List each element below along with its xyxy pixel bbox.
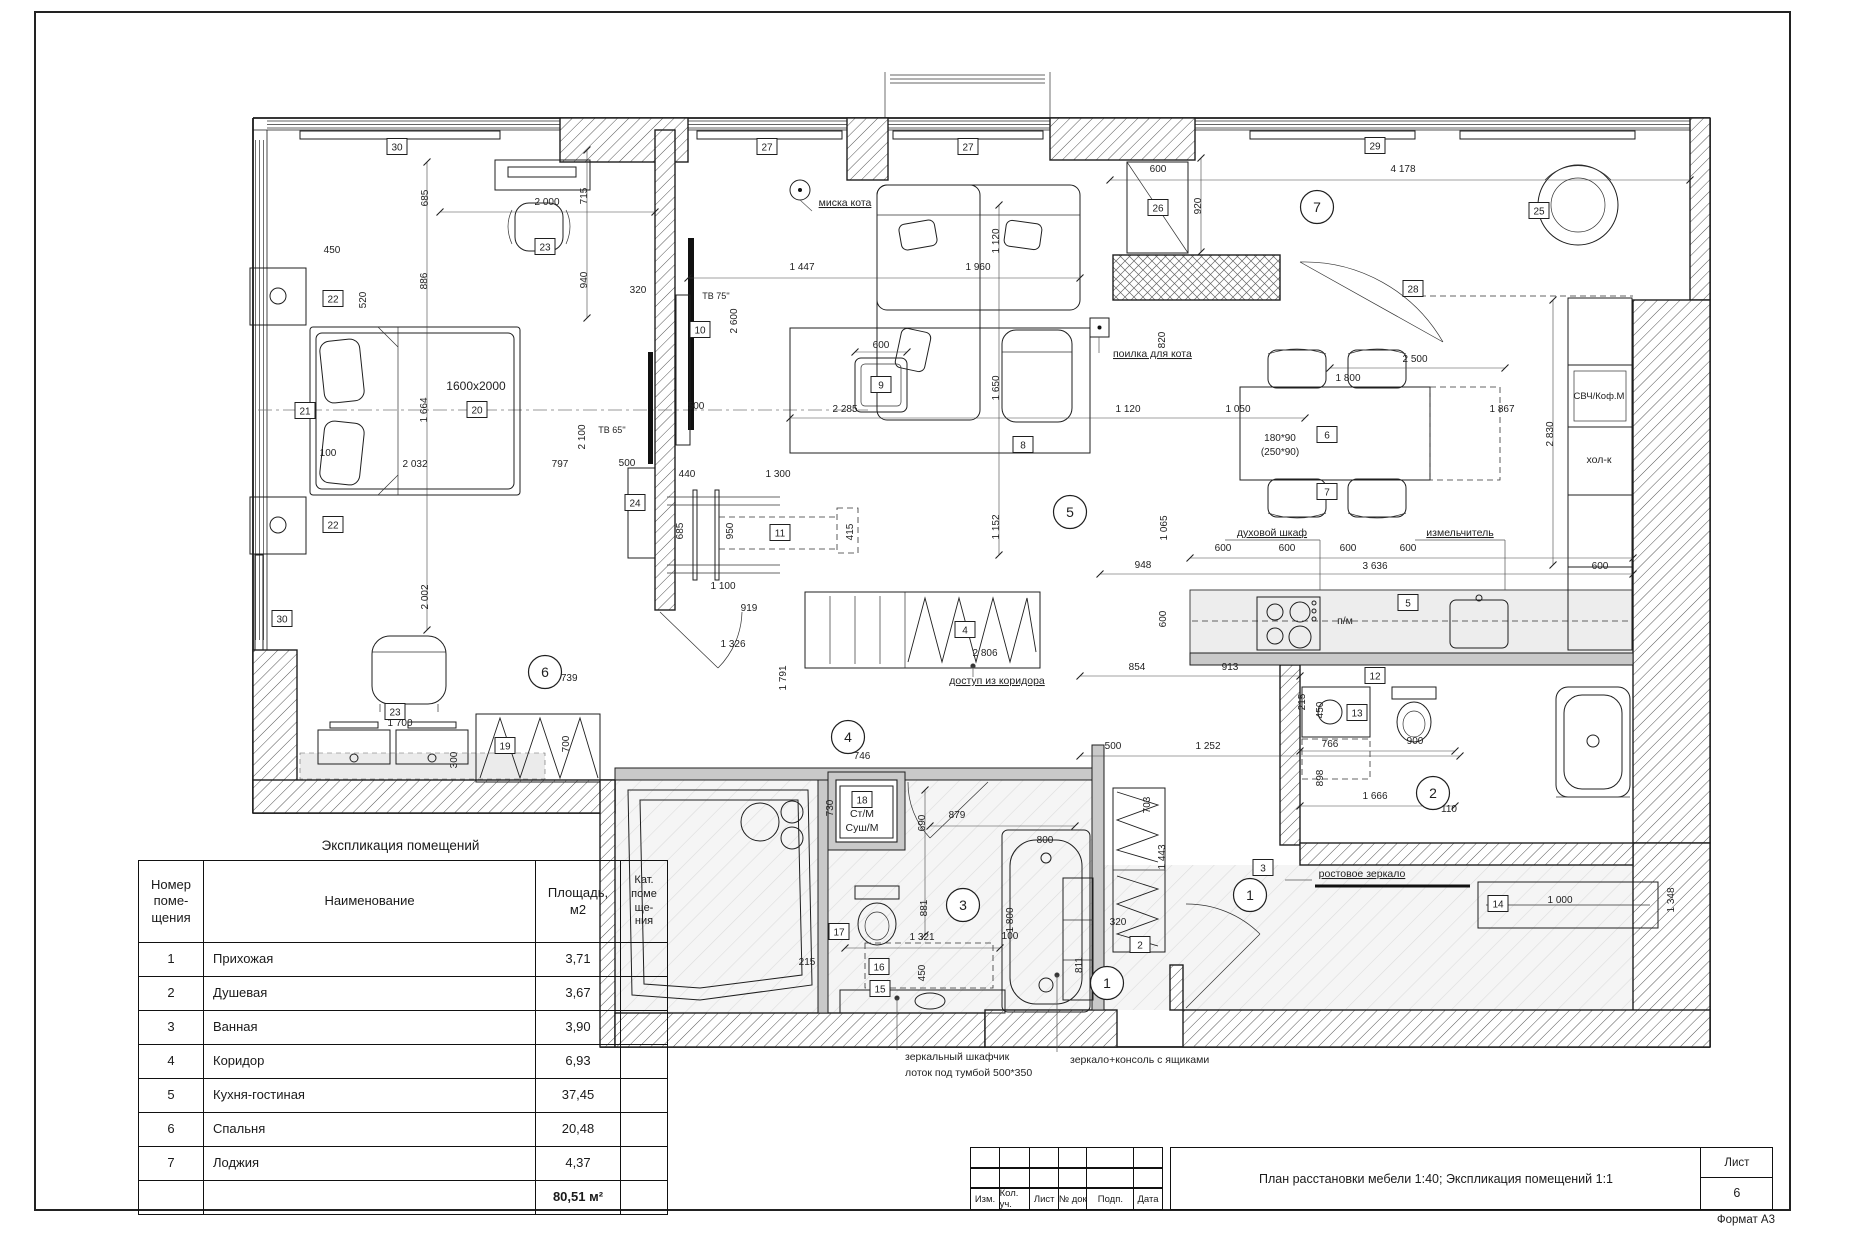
explication-table: Номер поме- щения Наименование Площадь, … bbox=[138, 860, 668, 1215]
dimension-label: 898 bbox=[1315, 769, 1326, 786]
dimension-label: 2 830 bbox=[1545, 421, 1556, 446]
dimension-label: 2 285 bbox=[832, 404, 857, 415]
dimension-label: 2 500 bbox=[1402, 354, 1427, 365]
dimension-label: 1 791 bbox=[778, 665, 789, 690]
dimension-label: 500 bbox=[1105, 741, 1122, 752]
dimension-label: 600 bbox=[1215, 543, 1232, 554]
dimension-label: 1 867 bbox=[1489, 404, 1514, 415]
dimension-label: 879 bbox=[949, 810, 966, 821]
explication-cell: Ванная bbox=[204, 1011, 536, 1045]
explication-cell: Душевая bbox=[204, 977, 536, 1011]
dimension-label: 900 bbox=[1407, 736, 1424, 747]
item-marker-number: 6 bbox=[1324, 431, 1330, 442]
dimension-label: 1 650 bbox=[991, 375, 1002, 400]
dimension-label: 600 bbox=[1400, 543, 1417, 554]
dimension-label: 2 100 bbox=[577, 424, 588, 449]
explication-cell: 5 bbox=[139, 1079, 204, 1113]
item-marker-number: 5 bbox=[1405, 599, 1411, 610]
dimension-label: 2 000 bbox=[534, 197, 559, 208]
stamp-cell bbox=[1029, 1168, 1059, 1188]
stamp-cell bbox=[1058, 1147, 1088, 1168]
drawing-sheet: { "sheet": { "format": "Формат А3", "tit… bbox=[0, 0, 1850, 1233]
dimension-label: 450 bbox=[1315, 701, 1326, 718]
item-marker-number: 30 bbox=[391, 143, 403, 154]
dimension-label: 1 100 bbox=[710, 581, 735, 592]
explication-row: 6Спальня20,48 bbox=[139, 1113, 668, 1147]
dimension-label: 1 800 bbox=[1005, 907, 1016, 932]
dimension-label: 215 bbox=[1297, 693, 1308, 710]
room-marker-number: 5 bbox=[1066, 504, 1074, 520]
dimension-label: 440 bbox=[679, 469, 696, 480]
dimension-label: 180*90 bbox=[1264, 433, 1296, 444]
explication-cell bbox=[621, 943, 668, 977]
item-marker-number: 27 bbox=[761, 143, 773, 154]
dimension-label: 100 bbox=[320, 448, 337, 459]
explication-cell: Спальня bbox=[204, 1113, 536, 1147]
annotation-label: духовой шкаф bbox=[1237, 527, 1308, 539]
dimension-label: 450 bbox=[917, 964, 928, 981]
item-marker-number: 17 bbox=[833, 928, 845, 939]
dimension-label: 940 bbox=[579, 271, 590, 288]
dimension-label: 690 bbox=[917, 814, 928, 831]
dimension-label: 1 666 bbox=[1362, 791, 1387, 802]
dimension-label: 520 bbox=[358, 291, 369, 308]
item-marker-number: 12 bbox=[1369, 672, 1381, 683]
dimension-label: 320 bbox=[630, 285, 647, 296]
item-marker-number: 7 bbox=[1324, 488, 1330, 499]
sheet-label-cell: Лист bbox=[1700, 1147, 1773, 1178]
room-marker-number: 4 bbox=[844, 729, 852, 745]
item-marker-number: 21 bbox=[299, 407, 311, 418]
dimension-label: 3 636 bbox=[1362, 561, 1387, 572]
explication-cell: 4,37 bbox=[536, 1147, 621, 1181]
explication-cell bbox=[621, 1045, 668, 1079]
annotation-label: ростовое зеркало bbox=[1319, 868, 1406, 880]
item-marker-number: 30 bbox=[276, 615, 288, 626]
dimension-label: (250*90) bbox=[1261, 447, 1299, 458]
explication-row: 1Прихожая3,71 bbox=[139, 943, 668, 977]
explication-row: 2Душевая3,67 bbox=[139, 977, 668, 1011]
annotation-label: ТВ 65'' bbox=[598, 425, 626, 435]
explication-cell: Лоджия bbox=[204, 1147, 536, 1181]
stamp-cell bbox=[1058, 1168, 1088, 1188]
explication-cell: 3 bbox=[139, 1011, 204, 1045]
stamp-cell bbox=[1133, 1168, 1163, 1188]
format-label: Формат А3 bbox=[1630, 1214, 1775, 1226]
explication-cell bbox=[621, 1147, 668, 1181]
item-marker-number: 3 bbox=[1260, 864, 1266, 875]
item-marker-number: 22 bbox=[327, 295, 339, 306]
item-marker-number: 28 bbox=[1407, 285, 1419, 296]
explication-total-row: 80,51 м² bbox=[139, 1181, 668, 1215]
dimension-label: 913 bbox=[1222, 662, 1239, 673]
dimension-label: 881 bbox=[919, 899, 930, 916]
dimension-label: 450 bbox=[324, 245, 341, 256]
annotation-label: Ст/М bbox=[850, 808, 874, 820]
item-marker-number: 19 bbox=[499, 742, 511, 753]
explication-row: 5Кухня-гостиная37,45 bbox=[139, 1079, 668, 1113]
item-marker-number: 10 bbox=[694, 326, 706, 337]
item-marker-number: 25 bbox=[1533, 207, 1545, 218]
dimension-label: 2 600 bbox=[729, 308, 740, 333]
explication-cell: Кухня-гостиная bbox=[204, 1079, 536, 1113]
item-marker-number: 22 bbox=[327, 521, 339, 532]
annotation-label: ТВ 75'' bbox=[702, 291, 730, 301]
item-marker-number: 27 bbox=[962, 143, 974, 154]
dimension-label: 854 bbox=[1129, 662, 1146, 673]
item-marker-number: 14 bbox=[1492, 900, 1504, 911]
stamp-col-label: Лист bbox=[1029, 1188, 1059, 1210]
dimension-label: 1 664 bbox=[419, 397, 430, 422]
item-marker-number: 2 bbox=[1137, 941, 1143, 952]
stamp-cell bbox=[1086, 1168, 1134, 1188]
explication-cell: 1 bbox=[139, 943, 204, 977]
dimension-label: 730 bbox=[825, 799, 836, 816]
dimension-label: 600 bbox=[1592, 561, 1609, 572]
dimension-label: 715 bbox=[579, 187, 590, 204]
room-marker-number: 7 bbox=[1313, 199, 1321, 215]
dimension-label: 600 bbox=[1279, 543, 1296, 554]
explication-total-cell: 80,51 м² bbox=[536, 1181, 621, 1215]
item-marker-number: 26 bbox=[1152, 204, 1164, 215]
dimension-label: 600 bbox=[1340, 543, 1357, 554]
room-marker-number: 1 bbox=[1246, 887, 1254, 903]
dimension-label: 685 bbox=[420, 189, 431, 206]
explication-cell: Коридор bbox=[204, 1045, 536, 1079]
dimension-label: 766 bbox=[1322, 739, 1339, 750]
explication-cell: 7 bbox=[139, 1147, 204, 1181]
item-marker-number: 15 bbox=[874, 985, 886, 996]
room-marker-number: 3 bbox=[959, 897, 967, 913]
dimension-label: 685 bbox=[675, 522, 686, 539]
explication-cell: 3,67 bbox=[536, 977, 621, 1011]
stamp-cell bbox=[970, 1168, 1000, 1188]
annotation-label: зеркало+консоль с ящиками bbox=[1070, 1054, 1209, 1066]
annotation-label: зеркальный шкафчик bbox=[905, 1051, 1010, 1063]
dimension-label: 4 178 bbox=[1390, 164, 1415, 175]
dimension-label: 600 bbox=[1150, 164, 1167, 175]
dimension-label: 2 032 bbox=[402, 459, 427, 470]
stamp-cell bbox=[1133, 1147, 1163, 1168]
dimension-label: 1 348 bbox=[1666, 887, 1677, 912]
annotation-label: п/м bbox=[1337, 615, 1353, 627]
item-marker-number: 18 bbox=[856, 796, 868, 807]
item-marker-number: 24 bbox=[629, 499, 641, 510]
explication-row: 3Ванная3,90 bbox=[139, 1011, 668, 1045]
explication-cell bbox=[621, 977, 668, 1011]
dimension-label: 500 bbox=[619, 458, 636, 469]
dimension-label: 415 bbox=[845, 523, 856, 540]
explication-total-cell bbox=[139, 1181, 204, 1215]
explication-cell: 2 bbox=[139, 977, 204, 1011]
explication-cell: 6,93 bbox=[536, 1045, 621, 1079]
item-marker-number: 29 bbox=[1369, 142, 1381, 153]
dimension-label: 919 bbox=[741, 603, 758, 614]
explication-cell bbox=[621, 1113, 668, 1147]
dimension-label: 797 bbox=[552, 459, 569, 470]
item-marker-number: 23 bbox=[539, 243, 551, 254]
stamp-col-label: № док bbox=[1058, 1188, 1088, 1210]
annotation-label: миска кота bbox=[819, 197, 872, 209]
tv-65 bbox=[648, 352, 653, 464]
col-header-cat: Кат. поме ще- ния bbox=[621, 861, 668, 943]
item-marker-number: 16 bbox=[873, 963, 885, 974]
col-header-name: Наименование bbox=[204, 861, 536, 943]
dimension-label: 1 120 bbox=[991, 228, 1002, 253]
col-header-area: Площадь, м2 bbox=[536, 861, 621, 943]
item-marker-number: 23 bbox=[389, 708, 401, 719]
dimension-label: 1 800 bbox=[1335, 373, 1360, 384]
explication-cell: 6 bbox=[139, 1113, 204, 1147]
dimension-label: 1600x2000 bbox=[446, 379, 506, 393]
dimension-label: 600 bbox=[873, 340, 890, 351]
annotation-label: СВЧ/Коф.М bbox=[1574, 391, 1625, 402]
stamp-col-label: Изм. bbox=[970, 1188, 1000, 1210]
explication-row: 7Лоджия4,37 bbox=[139, 1147, 668, 1181]
explication-cell: 3,90 bbox=[536, 1011, 621, 1045]
stamp-cell bbox=[999, 1147, 1031, 1168]
dimension-label: 1 050 bbox=[1225, 404, 1250, 415]
dimension-label: 300 bbox=[449, 751, 460, 768]
sheet-number-cell: 6 bbox=[1700, 1177, 1773, 1211]
annotation-label: поилка для кота bbox=[1113, 348, 1192, 360]
dimension-label: 320 bbox=[1110, 917, 1127, 928]
dimension-label: 920 bbox=[1193, 197, 1204, 214]
dimension-label: 2 806 bbox=[972, 648, 997, 659]
dimension-label: 1 326 bbox=[720, 639, 745, 650]
item-marker-number: 9 bbox=[878, 381, 884, 392]
item-marker-number: 13 bbox=[1351, 709, 1363, 720]
dimension-label: 1 960 bbox=[965, 262, 990, 273]
stamp-cell bbox=[1086, 1147, 1134, 1168]
dimension-label: 500 bbox=[688, 401, 705, 412]
stamp-col-label: Кол. уч. bbox=[999, 1188, 1031, 1210]
dimension-label: 2 002 bbox=[420, 584, 431, 609]
explication-cell bbox=[621, 1011, 668, 1045]
annotation-label: лоток под тумбой 500*350 bbox=[905, 1067, 1032, 1079]
dimension-label: 948 bbox=[1135, 560, 1152, 571]
explication-cell: 20,48 bbox=[536, 1113, 621, 1147]
dimension-label: 1 252 bbox=[1195, 741, 1220, 752]
stamp-col-label: Подп. bbox=[1086, 1188, 1134, 1210]
room-marker-number: 2 bbox=[1429, 785, 1437, 801]
dimension-label: 950 bbox=[725, 522, 736, 539]
stamp-cell bbox=[1029, 1147, 1059, 1168]
stamp-cell bbox=[970, 1147, 1000, 1168]
explication-title: Экспликация помещений bbox=[138, 838, 663, 853]
stamp-col-label: Дата bbox=[1133, 1188, 1163, 1210]
item-marker-number: 8 bbox=[1020, 441, 1026, 452]
dimension-label: 703 bbox=[1142, 796, 1153, 813]
dimension-label: 215 bbox=[799, 957, 816, 968]
annotation-label: доступ из коридора bbox=[949, 675, 1045, 687]
dimension-label: 811 bbox=[1074, 957, 1085, 973]
explication-cell bbox=[621, 1079, 668, 1113]
dimension-label: 746 bbox=[854, 751, 871, 762]
dimension-label: 1 300 bbox=[765, 469, 790, 480]
room-marker-number: 1 bbox=[1103, 975, 1111, 991]
annotation-label: измельчитель bbox=[1426, 527, 1494, 539]
explication-cell: Прихожая bbox=[204, 943, 536, 977]
item-marker-number: 4 bbox=[962, 626, 968, 637]
item-marker-number: 11 bbox=[775, 529, 786, 540]
titleblock-title: План расстановки мебели 1:40; Экспликаци… bbox=[1170, 1147, 1702, 1210]
annotation-label: Суш/М bbox=[846, 822, 879, 834]
dimension-label: 1 065 bbox=[1159, 515, 1170, 540]
dimension-label: 820 bbox=[1157, 331, 1168, 348]
explication-cell: 3,71 bbox=[536, 943, 621, 977]
dimension-label: 800 bbox=[1037, 835, 1054, 846]
stamp-cell bbox=[999, 1168, 1031, 1188]
explication-row: 4Коридор6,93 bbox=[139, 1045, 668, 1079]
dimension-label: 1 120 bbox=[1115, 404, 1140, 415]
dimension-label: 700 bbox=[561, 735, 572, 752]
dimension-label: 1 447 bbox=[789, 262, 814, 273]
dimension-label: 600 bbox=[1158, 610, 1169, 627]
room-marker-number: 6 bbox=[541, 664, 549, 680]
dimension-label: 1 443 bbox=[1157, 844, 1168, 869]
explication-cell: 37,45 bbox=[536, 1079, 621, 1113]
col-header-number: Номер поме- щения bbox=[139, 861, 204, 943]
explication-cell: 4 bbox=[139, 1045, 204, 1079]
dimension-label: 1 152 bbox=[991, 514, 1002, 539]
explication-total-cell bbox=[204, 1181, 536, 1215]
dimension-label: 1 000 bbox=[1547, 895, 1572, 906]
annotation-label: хол-к bbox=[1587, 454, 1612, 466]
dimension-label: 886 bbox=[419, 272, 430, 289]
item-marker-number: 20 bbox=[471, 406, 483, 417]
explication-total-cell bbox=[621, 1181, 668, 1215]
